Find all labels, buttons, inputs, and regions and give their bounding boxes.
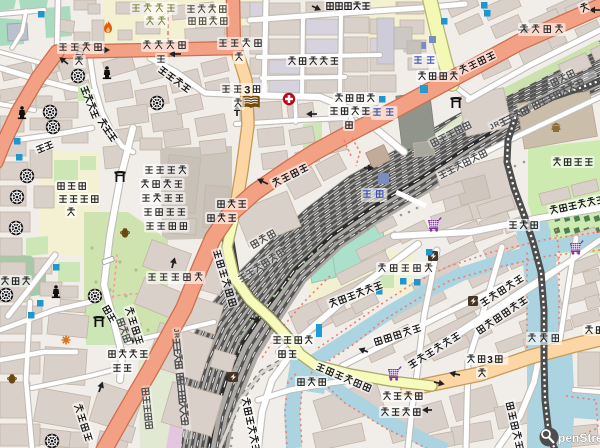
svg-text:3: 3 — [244, 85, 250, 97]
svg-text:R: R — [172, 333, 179, 339]
svg-text:3: 3 — [487, 355, 493, 366]
svg-text:penStreetMap: penStreetMap — [558, 431, 600, 445]
